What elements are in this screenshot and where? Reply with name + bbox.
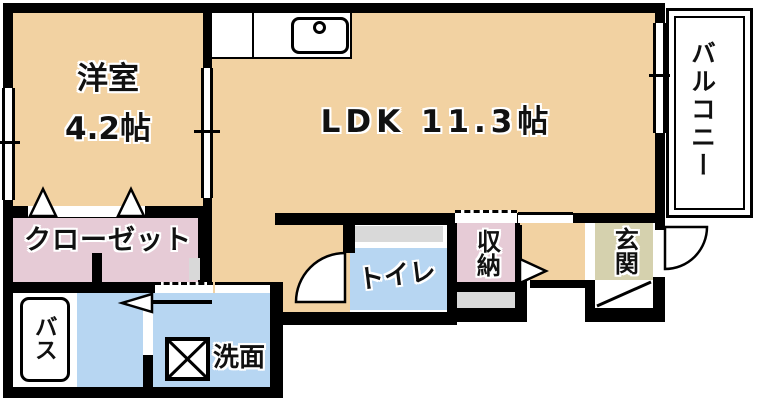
wall-ldk-bottom-right [573, 213, 660, 223]
wall-ldk-bottom-left [275, 213, 447, 225]
floor-plan: 洋室 4.2帖 LDK 11.3帖 バルコニー クローゼット バス 洗面 トイレ… [0, 0, 760, 403]
bath-label: バス [30, 315, 55, 375]
hallway-door-sliding [518, 212, 573, 223]
room-western [13, 13, 203, 206]
entrance-step [595, 280, 653, 308]
storage-door-folding [455, 210, 517, 223]
window-balcony-tick [649, 74, 670, 77]
balcony-label: バルコニー [688, 40, 716, 210]
storage-label: 収納 [473, 229, 499, 281]
wall-closet-right [198, 218, 212, 282]
wall-nook-left [270, 282, 283, 325]
entrance-inner-opening [585, 223, 595, 280]
wall-storage-right-lower [515, 280, 527, 322]
wall-toilet-left [343, 225, 355, 253]
wall-storage-right [515, 223, 520, 282]
western-room-area: 4.2帖 [13, 112, 203, 146]
washroom-door-sliding [215, 282, 270, 293]
room-hallway [517, 223, 585, 280]
entrance-door-arc [665, 227, 707, 269]
wall-bottom-center [283, 312, 457, 325]
wall-closet-bottom [3, 282, 157, 293]
closet-label: クローゼット [24, 226, 192, 256]
washroom-label: 洗面 [213, 344, 265, 373]
kitchen-counter-divider [252, 13, 254, 59]
faucet-icon [313, 21, 326, 34]
bath-door-leaf [143, 300, 153, 355]
entrance-label: 玄関 [611, 227, 637, 279]
wall-entrance-bottom [585, 308, 665, 322]
room-toilet-nook [275, 225, 350, 315]
room-ldk-lower [212, 200, 275, 293]
wall-right-upper [655, 3, 665, 23]
washroom-door-folding [155, 282, 213, 293]
wall-right-lower [653, 277, 665, 312]
wall-storage-bottom-upper [447, 282, 517, 292]
wall-western-ldk-upper [203, 13, 212, 70]
closet-right-gray [189, 258, 200, 280]
western-room-label: 洋室 [13, 62, 203, 96]
wall-bathdoor-lower [143, 355, 153, 387]
wall-bottom-left [3, 387, 283, 398]
wall-right-middle [655, 133, 665, 230]
closet-door-track [28, 206, 145, 217]
washing-machine-icon [165, 337, 210, 381]
wall-hallway-bottom [530, 280, 585, 288]
window-balcony [653, 23, 666, 133]
wall-top [3, 3, 665, 13]
storage-bottom-gray [457, 292, 515, 308]
toilet-shelf [353, 226, 443, 242]
ldk-label: LDK 11.3帖 [262, 105, 612, 139]
wall-closet-stub [92, 253, 102, 293]
front-door-opening [655, 230, 665, 277]
wall-left-lower [3, 200, 13, 398]
wall-left-upper [3, 3, 13, 90]
